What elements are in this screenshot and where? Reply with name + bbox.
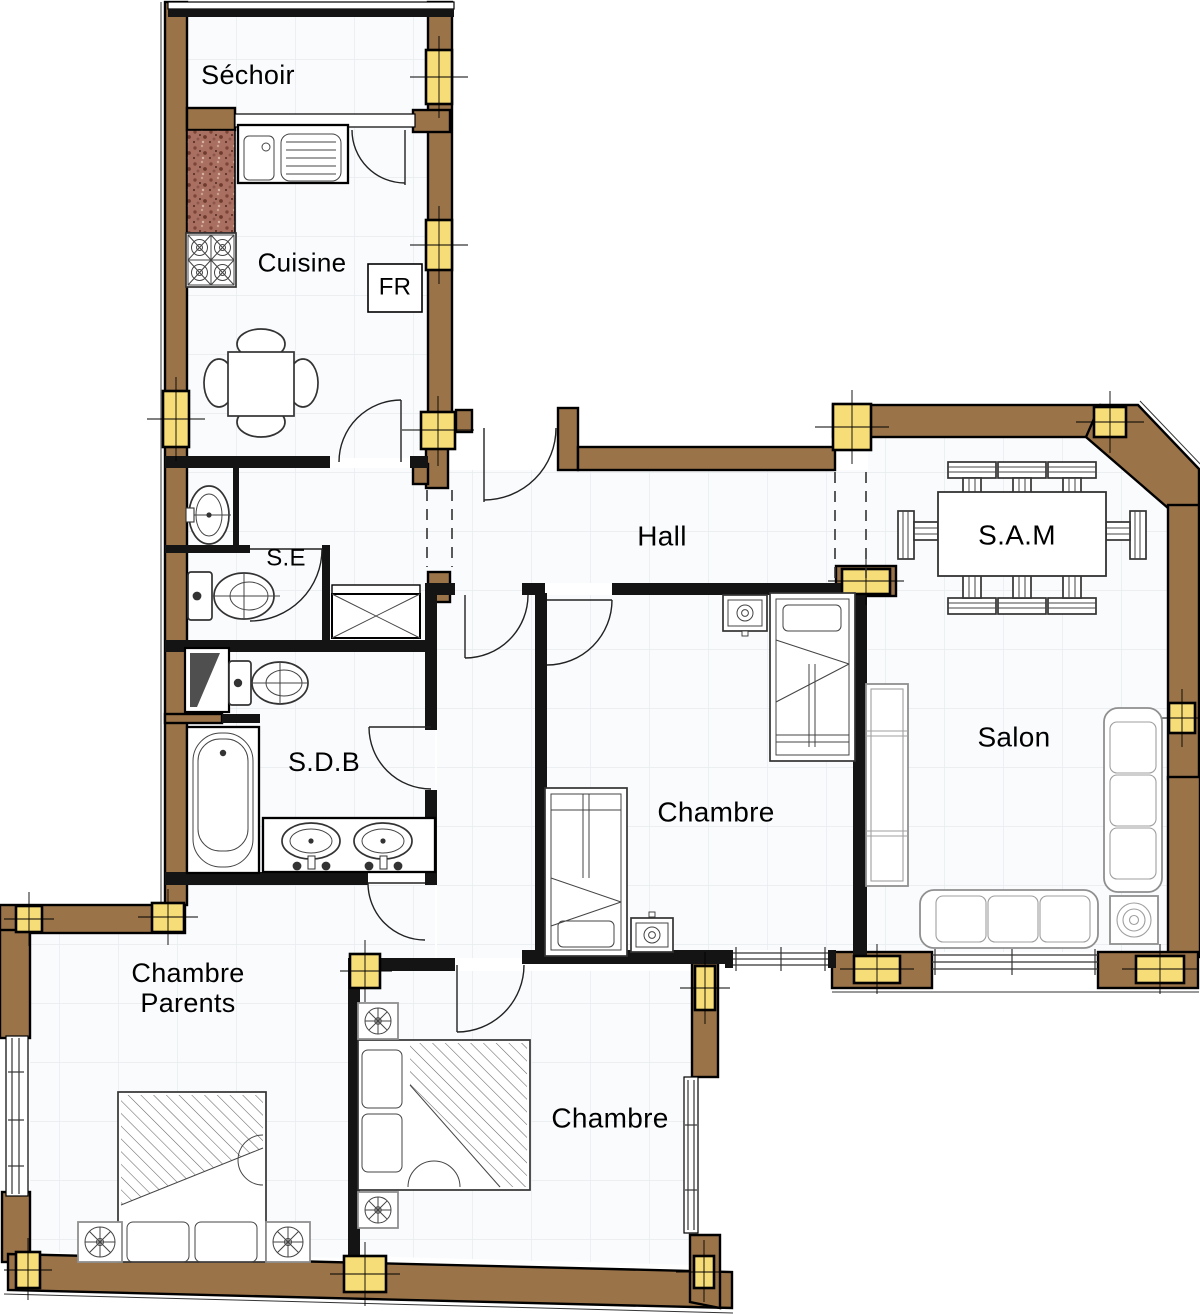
room-label-sdb: S.D.B	[288, 747, 360, 777]
floor-plan: Séchoir Cuisine FR S.E Hall S.A.M S.D.B …	[0, 0, 1200, 1314]
nightstand-lamp-top	[358, 1003, 398, 1039]
bookshelf	[866, 684, 908, 886]
sofa-bottom	[920, 890, 1098, 948]
closet	[332, 585, 420, 638]
room-label-hall: Hall	[637, 520, 686, 551]
window-chambre-middle-bottom	[733, 947, 828, 971]
single-bed-bottom	[545, 788, 627, 956]
room-label-chambre-middle: Chambre	[657, 796, 774, 827]
window-salon-bottom	[932, 949, 1098, 975]
bedside-basin-bottom	[631, 912, 673, 952]
room-label-sam: S.A.M	[978, 519, 1056, 550]
room-label-sechoir: Séchoir	[201, 60, 295, 90]
stove-icon	[186, 233, 236, 287]
bathtub	[187, 727, 259, 873]
single-bed-top	[770, 593, 855, 761]
plant-icon	[1110, 896, 1158, 944]
nightstand-lamp-right	[266, 1222, 310, 1262]
double-vanity	[263, 818, 435, 872]
double-bed-parents	[118, 1092, 266, 1262]
nightstand-lamp-bottom	[358, 1192, 398, 1228]
window-parents-left	[6, 1036, 28, 1196]
sdb-toilet	[229, 661, 308, 705]
granite-worktop	[187, 130, 235, 233]
bedside-basin-top	[723, 595, 767, 636]
nightstand-lamp-left	[78, 1222, 122, 1262]
room-label-se: S.E	[266, 546, 306, 573]
double-bed-bottom	[358, 1040, 530, 1190]
sofa-right	[1104, 708, 1162, 892]
window-chambre-right	[684, 1077, 698, 1233]
room-label-cuisine: Cuisine	[258, 248, 347, 277]
room-label-chambre-parents: Chambre Parents	[103, 958, 273, 1018]
room-label-chambre-bottom: Chambre	[551, 1102, 668, 1133]
room-label-fridge: FR	[379, 275, 412, 302]
room-label-salon: Salon	[977, 721, 1050, 752]
technical-shaft	[185, 648, 229, 712]
